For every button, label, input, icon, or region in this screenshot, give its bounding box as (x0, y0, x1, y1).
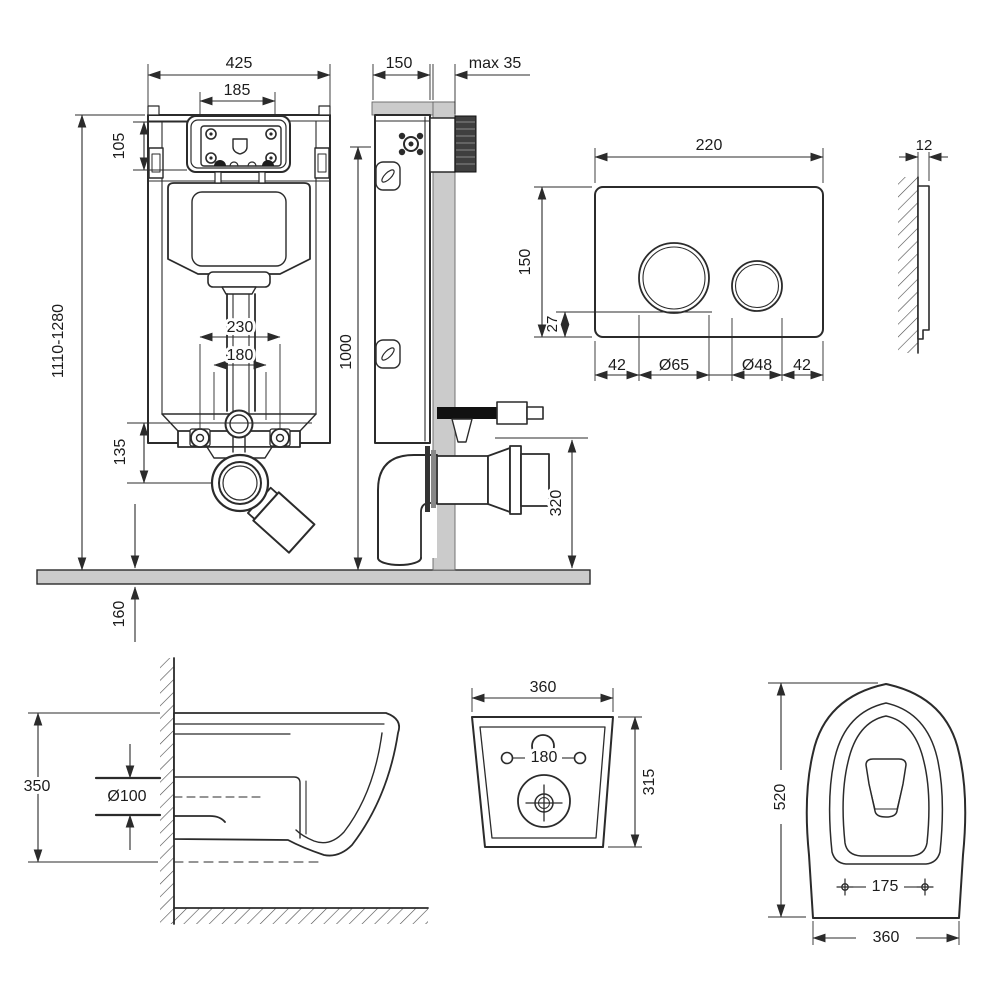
dim-label-175: 175 (872, 878, 899, 895)
dim-label-315: 315 (641, 769, 658, 796)
dim-label-360-top: 360 (873, 929, 900, 946)
dim-frame-depth: 150 (373, 55, 430, 100)
dim-label-230: 230 (227, 319, 254, 336)
dim-label-1110-1280: 1110-1280 (50, 304, 67, 378)
plate-side-profile (918, 186, 929, 339)
screw-dot (399, 133, 405, 139)
floor-hatch-bowl (174, 908, 428, 924)
dim-label-425: 425 (226, 55, 253, 72)
water-fitting-large (497, 402, 527, 424)
bowl-top-view: 520 175 360 (768, 683, 965, 946)
box-stud-right (259, 172, 265, 183)
dim-label-350: 350 (24, 778, 51, 795)
installation-drawing-page: 150 max 35 1000 320 (0, 0, 1000, 1000)
dim-label-105: 105 (111, 133, 128, 160)
frame-side-view: 150 max 35 1000 320 (338, 55, 588, 570)
dim-bowl-back-width: 360 (472, 679, 613, 712)
dim-label-12: 12 (916, 137, 933, 154)
wall-bracket-plate (430, 118, 455, 172)
flush-valve-neck (208, 272, 270, 287)
dim-label-d65: Ø65 (659, 357, 689, 374)
bowl-side-view: 350 Ø100 (24, 658, 428, 924)
flush-pipe-flare (222, 287, 256, 294)
hanger-cap-left (148, 106, 159, 115)
dim-label-180: 180 (227, 347, 254, 364)
fixing-screw-center (409, 142, 414, 147)
floor-section (37, 570, 590, 584)
dim-actuation-height: 1000 (338, 147, 371, 570)
dim-plate-height: 150 (517, 187, 592, 337)
cistern-tank (168, 183, 310, 274)
dim-label-520: 520 (772, 784, 789, 811)
dim-label-d48: Ø48 (742, 357, 772, 374)
fixing-bolt-right (270, 429, 290, 447)
pipe-clamp-dark (425, 446, 430, 512)
dim-label-150-plate: 150 (517, 249, 534, 276)
screw-dot (417, 133, 423, 139)
floor-bar (37, 570, 590, 584)
rail-bracket-right (315, 148, 329, 178)
dim-label-160: 160 (111, 601, 128, 628)
dim-drain-diameter: Ø100 (96, 744, 160, 850)
dim-label-27: 27 (544, 316, 561, 333)
drain-collar (510, 446, 521, 514)
water-fitting-small (527, 407, 543, 419)
dim-label-max35: max 35 (469, 55, 522, 72)
dim-label-d100: Ø100 (107, 788, 146, 805)
drain-elbow-bottom (378, 558, 421, 565)
flush-plate (595, 187, 823, 337)
dim-label-150: 150 (386, 55, 413, 72)
dim-bowl-width: 360 (813, 921, 959, 946)
bowl-back-view: 180 360 315 (472, 679, 658, 847)
dim-label-135: 135 (112, 439, 129, 466)
dim-label-220: 220 (696, 137, 723, 154)
flush-plate-side-view: 12 (898, 137, 948, 353)
drain-sleeve (521, 454, 549, 506)
drain-elbow-front (212, 455, 268, 511)
fixing-bolt-left (190, 429, 210, 447)
slotted-tab-upper (376, 162, 400, 190)
dim-label-1000: 1000 (338, 334, 355, 370)
dim-label-360-back: 360 (530, 679, 557, 696)
service-box-clip (233, 139, 247, 154)
dim-frame-height-range: 1110-1280 (50, 115, 145, 570)
water-supply-pipe (437, 407, 497, 419)
box-stud-left (215, 172, 221, 183)
dim-service-opening-width: 185 (200, 82, 275, 114)
dim-plate-width: 220 (595, 137, 823, 183)
pipe-clamp-light (431, 450, 436, 508)
dim-label-320: 320 (548, 490, 565, 517)
wall-hatch-bowl (160, 658, 174, 924)
dim-label-42-right: 42 (793, 357, 811, 374)
drain-pipe-horizontal (437, 456, 488, 504)
dim-label-42-left: 42 (608, 357, 626, 374)
drain-flare (488, 448, 510, 512)
hanger-cap-right (319, 106, 330, 115)
dim-label-180-back: 180 (531, 749, 558, 766)
wall-hatch (898, 177, 918, 353)
screw-dot (417, 149, 423, 155)
dim-bowl-back-height: 315 (608, 717, 658, 847)
dim-plate-thickness: 12 (899, 137, 948, 181)
flush-plate-front-view: 220 150 27 42 Ø65 Ø48 42 (517, 137, 823, 381)
rail-bracket-left (149, 148, 163, 178)
installation-drawing: 150 max 35 1000 320 (0, 0, 1000, 1000)
slotted-tab-lower (376, 340, 400, 368)
frame-front-view: 425 185 105 1110-1280 230 180 (50, 55, 330, 642)
screw-dot (399, 149, 405, 155)
dim-label-185: 185 (224, 82, 251, 99)
